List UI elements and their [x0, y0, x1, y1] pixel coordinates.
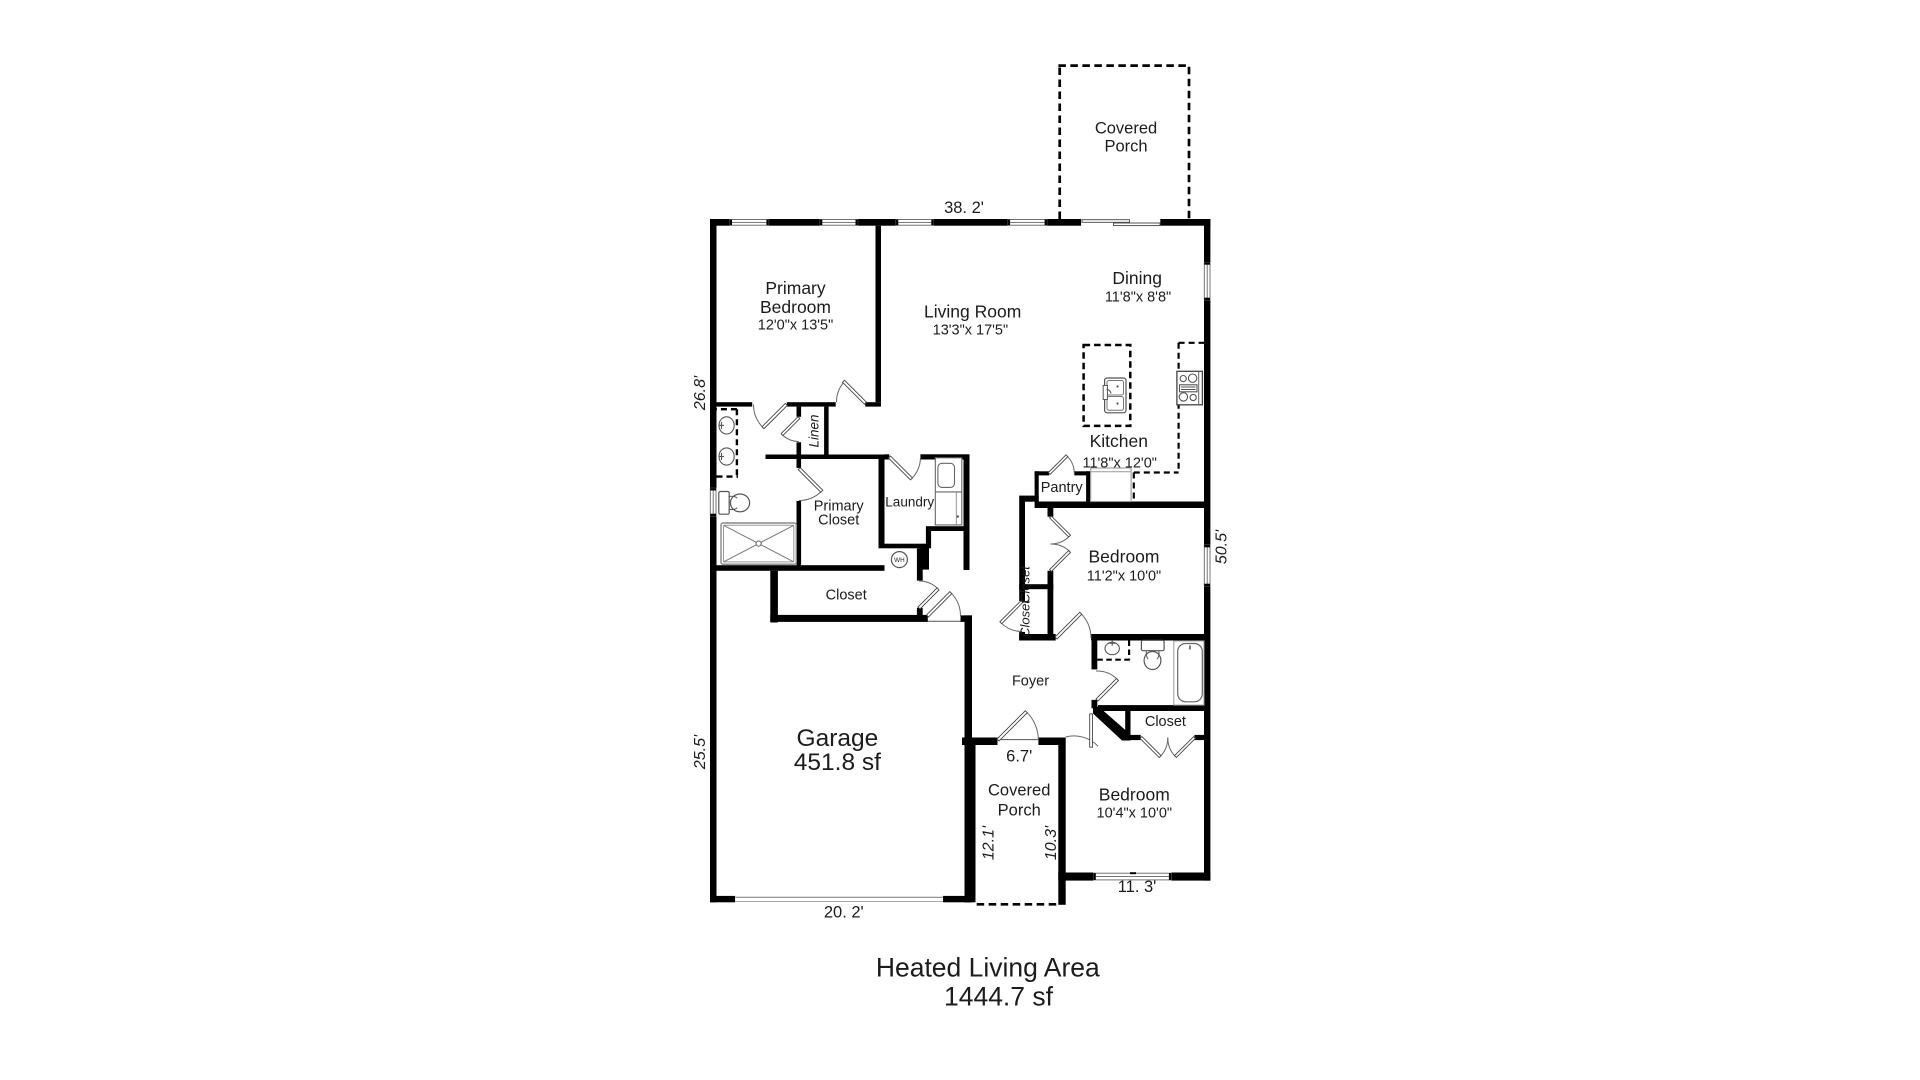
svg-text:Linen: Linen	[807, 414, 822, 447]
svg-text:Closet: Closet	[818, 513, 859, 529]
svg-text:13'3"x 17'5": 13'3"x 17'5"	[933, 323, 1009, 339]
svg-text:10'4"x 10'0": 10'4"x 10'0"	[1097, 806, 1173, 822]
svg-text:11. 3': 11. 3'	[1118, 878, 1157, 896]
svg-text:Laundry: Laundry	[885, 495, 934, 510]
svg-text:Bedroom: Bedroom	[1088, 547, 1159, 567]
svg-text:Living Room: Living Room	[924, 302, 1021, 322]
svg-text:Closet: Closet	[826, 588, 867, 604]
svg-text:50.5': 50.5'	[1214, 529, 1231, 564]
svg-text:Pantry: Pantry	[1041, 480, 1084, 496]
svg-text:Closet: Closet	[1145, 714, 1186, 730]
svg-text:Bedroom: Bedroom	[1099, 785, 1170, 805]
svg-text:Porch: Porch	[1104, 138, 1147, 156]
svg-text:38. 2': 38. 2'	[944, 199, 984, 217]
svg-text:Primary: Primary	[765, 278, 826, 298]
svg-text:Bedroom: Bedroom	[760, 297, 831, 317]
svg-text:26.8': 26.8'	[692, 375, 709, 411]
svg-text:Garage: Garage	[797, 725, 879, 752]
svg-text:Dining: Dining	[1112, 268, 1162, 288]
svg-text:12.1': 12.1'	[981, 825, 998, 860]
svg-text:11'8"x 8'8": 11'8"x 8'8"	[1105, 290, 1171, 306]
svg-text:WH: WH	[894, 557, 905, 564]
svg-text:Closet: Closet	[1018, 599, 1033, 637]
svg-text:Heated Living Area: Heated Living Area	[876, 953, 1100, 983]
svg-text:Foyer: Foyer	[1012, 674, 1049, 690]
svg-text:Covered: Covered	[1095, 120, 1157, 138]
svg-text:11'2"x 10'0": 11'2"x 10'0"	[1087, 569, 1161, 585]
svg-text:25.5': 25.5'	[692, 734, 709, 770]
svg-text:12'0"x 13'5": 12'0"x 13'5"	[758, 318, 834, 334]
svg-text:11'8"x 12'0": 11'8"x 12'0"	[1082, 456, 1156, 472]
svg-text:Covered: Covered	[988, 782, 1050, 800]
svg-text:10.3': 10.3'	[1043, 825, 1060, 860]
svg-text:1444.7 sf: 1444.7 sf	[944, 982, 1054, 1012]
svg-text:Kitchen: Kitchen	[1090, 431, 1148, 451]
svg-text:Closet: Closet	[1018, 565, 1033, 603]
svg-text:451.8 sf: 451.8 sf	[794, 749, 881, 776]
svg-text:Porch: Porch	[998, 802, 1041, 820]
svg-text:20. 2': 20. 2'	[824, 904, 864, 922]
svg-text:6.7': 6.7'	[1006, 748, 1032, 766]
